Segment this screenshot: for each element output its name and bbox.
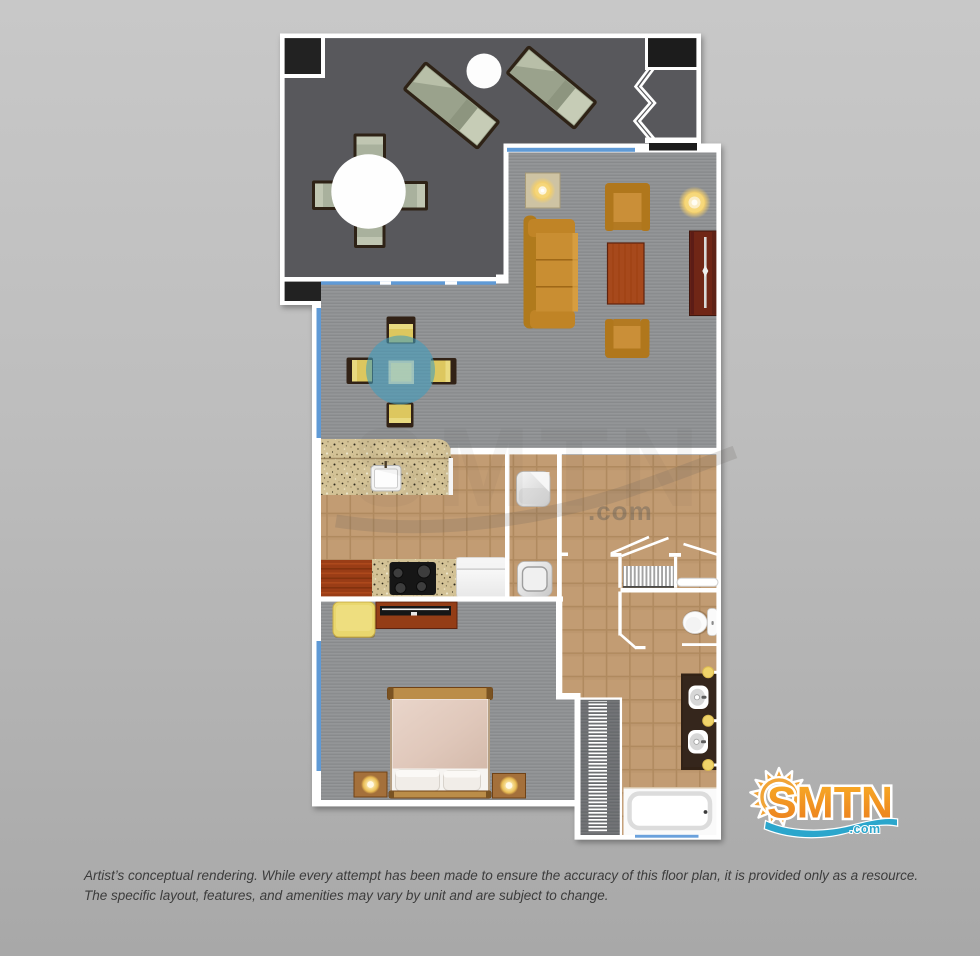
svg-text:.com: .com xyxy=(850,822,881,836)
svg-text:.com: .com xyxy=(588,496,653,526)
